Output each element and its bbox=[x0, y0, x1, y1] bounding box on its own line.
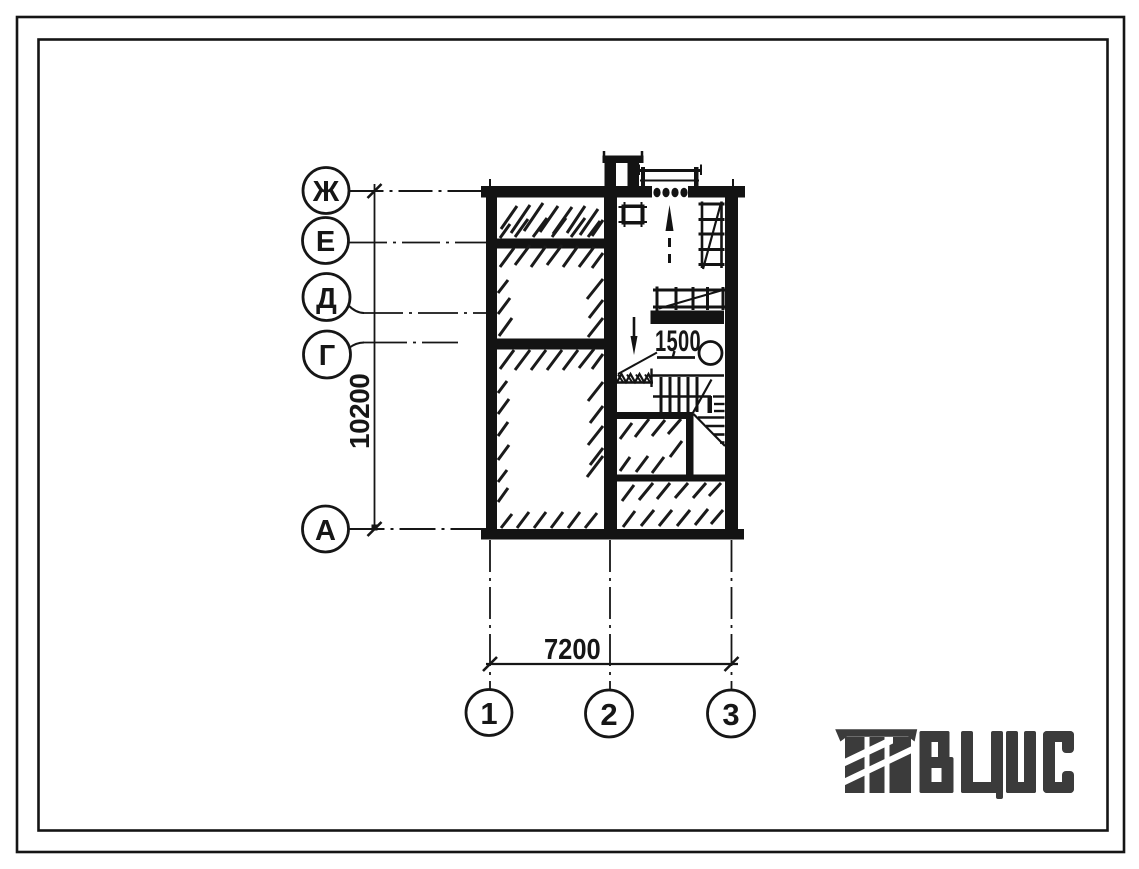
svg-text:3: 3 bbox=[722, 697, 739, 732]
svg-text:1: 1 bbox=[480, 696, 497, 731]
svg-text:10200: 10200 bbox=[344, 374, 375, 449]
svg-text:Д: Д bbox=[316, 283, 337, 315]
svg-text:Е: Е bbox=[316, 226, 335, 258]
svg-text:А: А bbox=[315, 515, 336, 547]
svg-text:1500: 1500 bbox=[655, 325, 701, 358]
svg-text:Ж: Ж bbox=[312, 176, 340, 208]
svg-text:Г: Г bbox=[319, 340, 335, 372]
svg-text:2: 2 bbox=[600, 697, 617, 732]
svg-text:7200: 7200 bbox=[544, 632, 601, 665]
